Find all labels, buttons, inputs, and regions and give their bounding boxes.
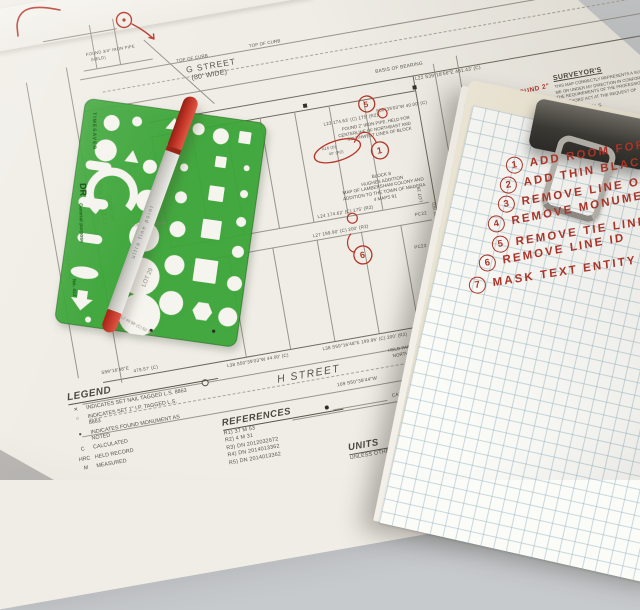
circled-number: 1 — [505, 155, 524, 174]
red-circle-arrow-annotation — [112, 8, 168, 50]
template-model: No. 422 — [71, 279, 78, 297]
circled-number: 4 — [486, 214, 506, 234]
circled-number: 2 — [499, 175, 519, 195]
template-logo: DR — [78, 183, 88, 197]
template-brand: TIMESAVER — [91, 112, 97, 150]
circled-number: 7 — [468, 275, 487, 294]
red-scribble-mark — [6, 2, 68, 44]
circled-number: 6 — [477, 253, 497, 273]
